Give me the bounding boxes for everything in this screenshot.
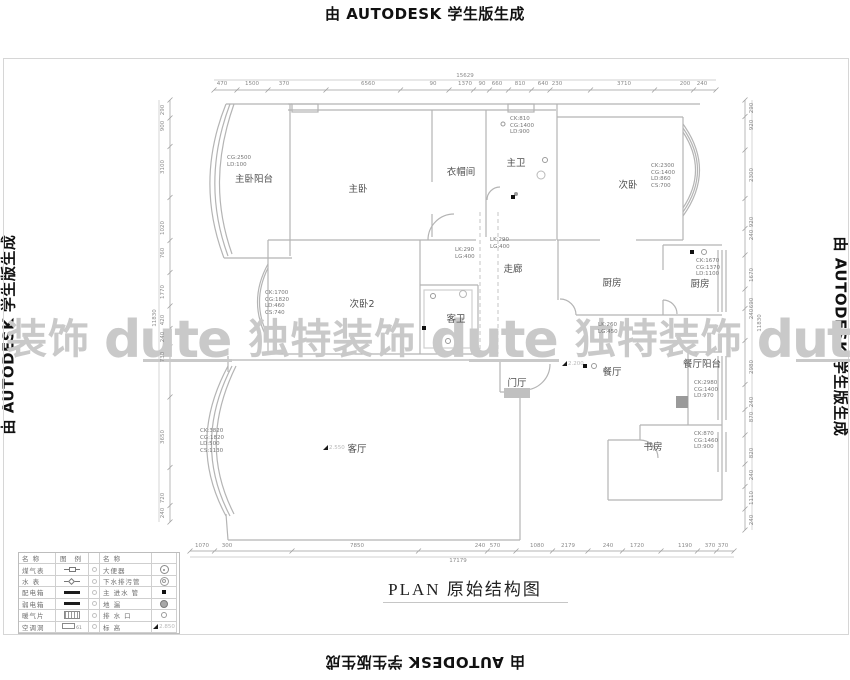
dimension-label: 240 (749, 309, 755, 320)
dimension-label: 1500 (245, 81, 259, 87)
dimension-label: 690 (749, 298, 755, 309)
dimension-label: 230 (552, 81, 563, 87)
legend-header-symbol: 图 例 (56, 553, 89, 564)
dimension-label: 1720 (630, 543, 644, 549)
legend-item-symbol (56, 599, 89, 610)
dim-total-top: 15629 (456, 73, 474, 79)
legend-item-name: 下水排污管 (100, 576, 152, 587)
legend-item-symbol (152, 587, 177, 598)
dimension-label: 240 (160, 332, 166, 343)
dimension-label: 300 (222, 543, 233, 549)
dimension-label: 370 (279, 81, 290, 87)
dimension-label: 90 (479, 81, 486, 87)
legend-item-name: 水 表 (19, 576, 56, 587)
dimension-label: 900 (160, 121, 166, 132)
dimension-label: 6560 (361, 81, 375, 87)
legend-gutter (89, 610, 100, 621)
room-label: 书房 (643, 439, 662, 453)
dimension-label: 240 (749, 515, 755, 526)
legend-item-name: 空调洞 (19, 622, 56, 633)
room-label: 餐厅阳台 (683, 356, 721, 370)
gutter-dot-icon (92, 590, 97, 595)
legend-item-name: 标 高 (100, 622, 152, 633)
dimension-label: 760 (160, 248, 166, 259)
gutter-dot-icon (92, 567, 97, 572)
wall-opening-annotation: CG:2500 LD:100 (227, 155, 251, 168)
legend-item-name: 大便器 (100, 564, 152, 575)
wall-opening-annotation: CK:1700 CG:1820 LD:460 CS:740 (265, 290, 289, 316)
legend-gutter (89, 587, 100, 598)
dimension-label: 240 (749, 397, 755, 408)
legend-gutter (89, 553, 100, 564)
drawing-title: PLAN 原始结构图 (360, 575, 570, 600)
dimension-label: 3100 (160, 160, 166, 174)
wall-opening-annotation: LK:290 LG:400 (490, 237, 510, 250)
dimension-label: 720 (160, 493, 166, 504)
dimension-label: 3710 (617, 81, 631, 87)
dimension-label: 1020 (160, 221, 166, 235)
legend-table: 名 称图 例名 称煤气表大便器水 表下水排污管配电箱主 进水 管弱电箱地 漏暖气… (18, 552, 180, 634)
elevation-flag-icon (562, 361, 567, 366)
dimension-label: 470 (217, 81, 228, 87)
dimension-label: 290 (160, 105, 166, 116)
water-meter-icon (64, 581, 80, 582)
elevation-marker: 2.550 (323, 445, 345, 451)
wall-opening-annotation: CK:3820 CG:1820 LD:500 CS:1130 (200, 428, 224, 454)
room-label: 衣帽间 (447, 164, 476, 178)
gutter-dot-icon (92, 601, 97, 606)
dimension-label: 810 (515, 81, 526, 87)
dimension-label: 370 (705, 543, 716, 549)
dimension-label: 1190 (678, 543, 692, 549)
ac-hole-icon (62, 623, 75, 629)
legend-item-symbol: 61 (56, 622, 89, 633)
gutter-dot-icon (92, 624, 97, 629)
dimension-label: 820 (749, 448, 755, 459)
radiator-icon (64, 611, 80, 619)
dimension-label: 1070 (195, 543, 209, 549)
room-label: 次卧 (618, 177, 637, 191)
toilet-icon (160, 565, 169, 574)
dimension-label: 920 (749, 120, 755, 131)
elevation-marker: 2.200 (562, 361, 584, 367)
legend-item-name: 排 水 口 (100, 610, 152, 621)
dimension-label: 240 (749, 230, 755, 241)
legend-item-name: 煤气表 (19, 564, 56, 575)
room-label: 主卫 (506, 155, 525, 169)
dimension-label: 240 (603, 543, 614, 549)
dimension-label: 370 (718, 543, 729, 549)
legend-header-name: 名 称 (100, 553, 152, 564)
legend-gutter (89, 599, 100, 610)
room-label: 门厅 (507, 375, 526, 389)
main-water-pipe-icon (162, 590, 166, 594)
legend-item-symbol (152, 576, 177, 587)
dim-total-right: 11830 (757, 314, 763, 332)
room-label: 厨房 (602, 275, 621, 289)
legend-header-symbol-blank (152, 553, 177, 564)
legend-gutter (89, 576, 100, 587)
legend-item-name: 暖气片 (19, 610, 56, 621)
dimension-label: 240 (697, 81, 708, 87)
legend-item-symbol (56, 576, 89, 587)
dim-total-left: 11830 (152, 309, 158, 327)
wall-opening-annotation: CK:810 CG:1400 LD:900 (510, 116, 534, 136)
wall-opening-annotation: LK:290 LG:400 (455, 247, 475, 260)
legend-item-symbol (152, 599, 177, 610)
legend-item-symbol (152, 564, 177, 575)
dimension-label: 1110 (749, 491, 755, 505)
dimension-label: 660 (492, 81, 503, 87)
dimension-label: 2300 (749, 168, 755, 182)
room-label: 次卧2 (349, 296, 374, 310)
sewage-pipe-icon (160, 577, 169, 586)
dimension-label: 90 (430, 81, 437, 87)
legend-item-symbol: 2.850 (152, 622, 177, 633)
room-label: 厨房 (690, 276, 709, 290)
drain-outlet-icon (161, 612, 167, 618)
dimension-label: 1370 (458, 81, 472, 87)
wall-opening-annotation: LK:260 LG:450 (598, 322, 618, 335)
room-label: 客卫 (446, 311, 465, 325)
dimension-label: 3650 (160, 430, 166, 444)
legend-gutter (89, 622, 100, 633)
room-label: 主卧阳台 (235, 171, 273, 185)
dimension-label: 420 (160, 315, 166, 326)
dimension-label: 640 (538, 81, 549, 87)
legend-item-name: 主 进水 管 (100, 587, 152, 598)
dimension-label: 570 (490, 543, 501, 549)
gutter-dot-icon (92, 579, 97, 584)
floor-drain-icon (160, 600, 168, 608)
title-underline (383, 602, 568, 603)
room-label: 客厅 (347, 441, 366, 455)
dimension-label: 240 (160, 508, 166, 519)
corridor-dashed-lines (480, 212, 498, 354)
dimension-label: 7850 (350, 543, 364, 549)
ac-hole-size: 61 (76, 626, 82, 631)
legend-gutter (89, 564, 100, 575)
gas-meter-icon (64, 569, 80, 570)
legend-item-symbol (56, 587, 89, 598)
dimension-label: 2179 (561, 543, 575, 549)
legend-item-symbol (152, 610, 177, 621)
dimension-label: 870 (749, 412, 755, 423)
dimension-label: 200 (680, 81, 691, 87)
dimension-label: 1080 (530, 543, 544, 549)
legend-item-symbol (56, 610, 89, 621)
dim-total-bottom: 17179 (449, 558, 467, 564)
lv-box-icon (64, 602, 80, 605)
elevation-flag-icon (323, 445, 328, 450)
room-label: 走廊 (503, 261, 522, 275)
dimension-label: 1770 (160, 285, 166, 299)
gutter-dot-icon (92, 613, 97, 618)
wall-opening-annotation: CK:1670 CG:1370 LD:1100 (696, 258, 720, 278)
dimension-label: 290 (749, 103, 755, 114)
legend-item-name: 弱电箱 (19, 599, 56, 610)
dimension-label: 2980 (749, 360, 755, 374)
dimension-label: 920 (749, 217, 755, 228)
legend-item-name: 配电箱 (19, 587, 56, 598)
legend-item-name: 地 漏 (100, 599, 152, 610)
room-label: 餐厅 (602, 364, 621, 378)
dimension-label: 730 (160, 352, 166, 363)
dimension-label: 240 (475, 543, 486, 549)
wall-opening-annotation: CK:870 CG:1460 LD:900 (694, 431, 718, 451)
dimension-label: 1670 (749, 268, 755, 282)
legend-header-name: 名 称 (19, 553, 56, 564)
room-label: 主卧 (348, 181, 367, 195)
dimension-label: 240 (749, 470, 755, 481)
wall-opening-annotation: CK:2980 CG:1400 LD:970 (694, 380, 718, 400)
cad-sheet: 由 AUTODESK 学生版生成 由 AUTODESK 学生版生成 由 AUTO… (0, 0, 850, 680)
power-box-icon (64, 591, 80, 594)
legend-item-symbol (56, 564, 89, 575)
wall-opening-annotation: CK:2300 CG:1400 LD:860 CS:700 (651, 163, 675, 189)
